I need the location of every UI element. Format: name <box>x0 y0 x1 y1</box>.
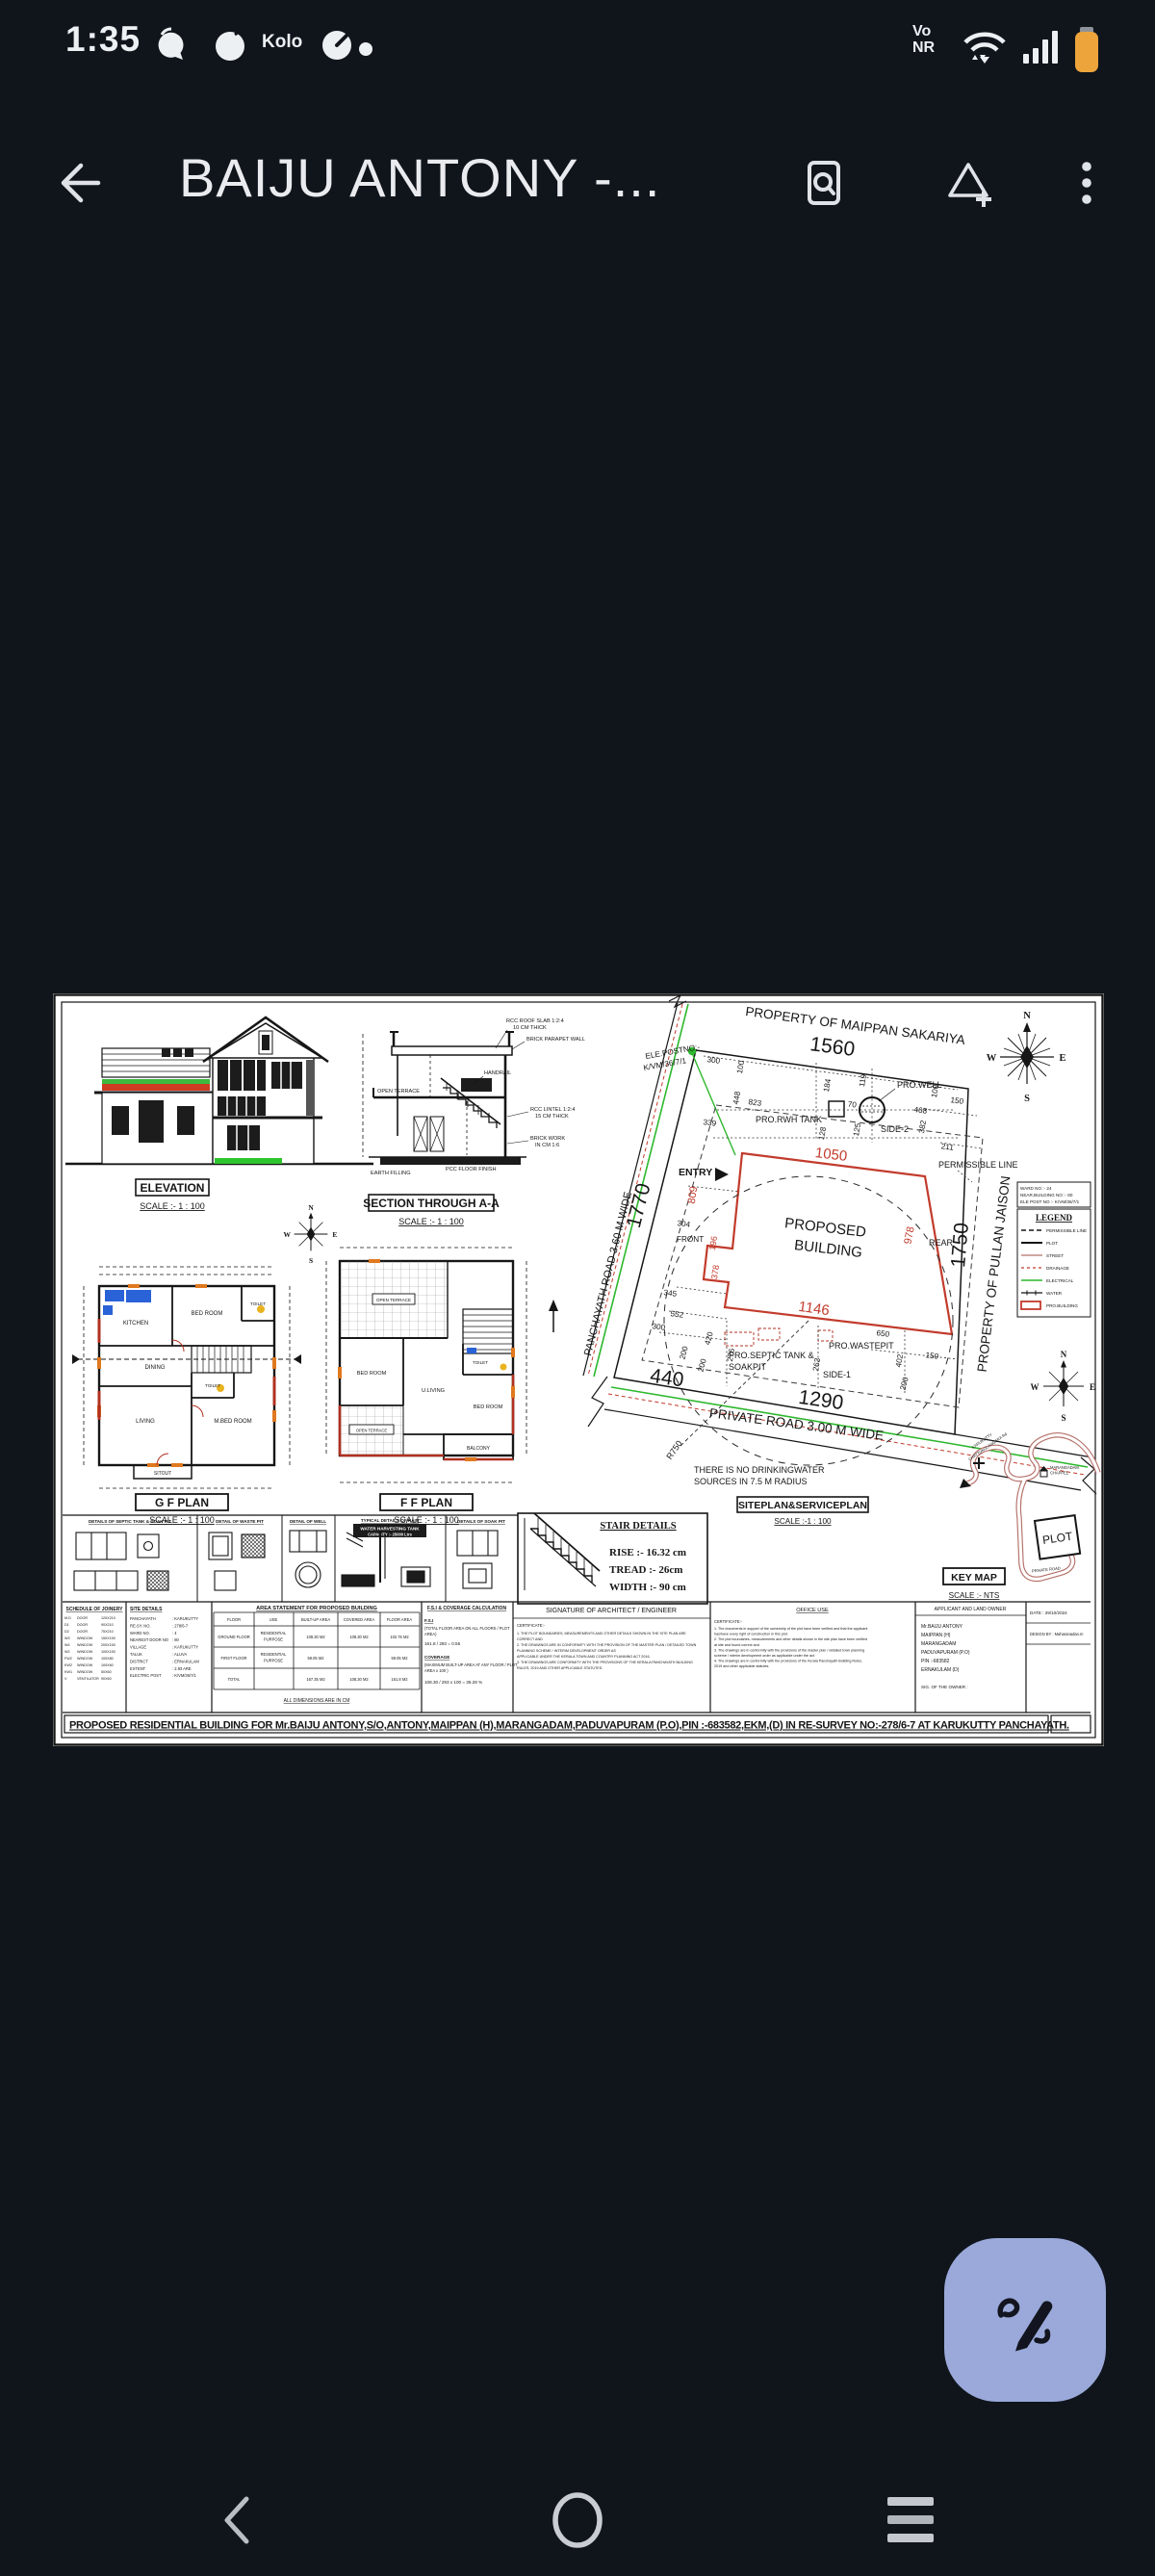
stair-title: STAIR DETAILS <box>600 1521 676 1532</box>
site-detail-val: : 2.93 ARE <box>172 1666 192 1671</box>
applicant-title: APPLICANT AND LAND OWNER <box>935 1607 1007 1612</box>
septic-label1: PRO.SEPTIC TANK & <box>729 1351 814 1360</box>
siteplan-title: SITEPLAN&SERVICEPLAN <box>738 1500 867 1511</box>
dim-339: 339 <box>703 1118 717 1128</box>
area-cell: 167.35 M2 <box>306 1677 325 1682</box>
detail-title-rwh2: WATER HARVESTING TANK <box>360 1527 420 1532</box>
app-notification-icon <box>210 25 250 65</box>
dim-211: 211 <box>940 1142 954 1152</box>
site-detail-key: WARD NO. <box>130 1631 150 1636</box>
gf-living: LIVING <box>136 1419 155 1425</box>
compass-s: S <box>1024 1094 1030 1104</box>
signature-line: 1. THE PLOT BOUNDARIES, MEASUREMENTS AND… <box>517 1632 686 1636</box>
detail-title-soakpit: DETAILS OF SOAK PIT <box>457 1519 505 1524</box>
ff-bedroom2: BED ROOM <box>474 1404 503 1410</box>
gf-mbedroom: M.BED ROOM <box>214 1419 251 1425</box>
site-detail-key: PANCHAYATH <box>130 1616 156 1621</box>
joinery-cell: KW1 <box>64 1670 72 1674</box>
compass3-n: N <box>308 1203 314 1212</box>
legend-drainage: DRAINAGE <box>1046 1266 1069 1271</box>
caption-text: PROPOSED RESIDENTIAL BUILDING FOR Mr.BAI… <box>69 1720 1069 1732</box>
side2-label: SIDE-2 <box>881 1124 909 1134</box>
gf-toilet1: TOILET <box>250 1301 266 1306</box>
section-scale: SCALE :- 1 : 100 <box>398 1217 464 1226</box>
near-building-no: NEAR.BUILDING NO :- 80 <box>1020 1193 1073 1198</box>
signature-line: APPLICABLE UNDER THE KERALA TOWN AND COU… <box>517 1655 651 1659</box>
permissible-label: PERMISSIBLE LINE <box>938 1160 1018 1170</box>
site-detail-val: : ERNAKULAM <box>172 1659 199 1663</box>
ward-no: WARD NO :- 24 <box>1020 1186 1052 1191</box>
section-ann-brick: BRICK WORK <box>530 1136 565 1142</box>
blueprint-page[interactable]: ELEVATION SCALE :- 1 : 100 <box>53 993 1104 1746</box>
joinery-cell: 50X60 <box>101 1670 112 1674</box>
joinery-cell: 200X150 <box>101 1643 115 1647</box>
well-label: PRO.WELL <box>897 1080 942 1090</box>
signature-line: PLANNING SCHEME / INTERIM DEVELOPMENT OR… <box>517 1649 616 1653</box>
fsi-line: (TOTAL FLOOR AREA ON ALL FLOORS / PLOT <box>424 1626 510 1631</box>
site-detail-val: : K/VM/36/7/1 <box>172 1673 197 1678</box>
compass2-s: S <box>1061 1413 1065 1423</box>
gf-bedroom1: BED ROOM <box>192 1311 223 1317</box>
chappel-label1: MARANGADAM <box>1050 1465 1079 1470</box>
compass3-s: S <box>309 1256 313 1265</box>
legend-probuilding: PRO.BUILDING <box>1046 1303 1078 1308</box>
chat-notification-icon <box>154 25 194 65</box>
section-ann-brick2: IN CM 1:6 <box>535 1143 559 1148</box>
scribble-pen-icon <box>984 2279 1066 2361</box>
wifi-icon <box>961 25 1009 69</box>
site-detail-key: DISTRICT <box>130 1659 148 1663</box>
office-line: at site and found correct and <box>714 1643 759 1647</box>
speedtest-notification-icon <box>320 25 381 65</box>
area-cell: 108.30 M2 <box>306 1635 325 1639</box>
signature-title: SIGNATURE OF ARCHITECT / ENGINEER <box>546 1608 677 1614</box>
joinery-cell: D2 <box>64 1630 69 1634</box>
detail-title-septic: DETAILS OF SEPTIC TANK & SOAK PIT <box>89 1519 171 1524</box>
side1-label: SIDE-1 <box>823 1370 851 1379</box>
joinery-cell: WINDOW <box>77 1670 93 1674</box>
nav-home-button[interactable] <box>549 2491 606 2549</box>
joinery-cell: M.D <box>64 1616 71 1620</box>
area-header: BUILT-UP AREA <box>301 1617 330 1622</box>
gf-plan-title: G F PLAN <box>155 1496 209 1509</box>
applicant-line: PADUVAPURAM (P.O) <box>921 1650 970 1656</box>
site-detail-val: : KARUKUTTY <box>172 1616 198 1621</box>
detail-title-wastepit: DETAIL OF WASTE PIT <box>216 1519 264 1524</box>
compass-w: W <box>987 1053 997 1064</box>
kolo-notification-label: Kolo <box>262 32 302 53</box>
area-cell: 59.05 M2 <box>307 1656 324 1661</box>
nav-recents-button[interactable] <box>885 2495 936 2545</box>
fsi-line: AREA x 100 ) <box>424 1668 449 1673</box>
site-detail-key: VILLAGE <box>130 1645 146 1650</box>
area-cell: FIRST FLOOR <box>221 1656 247 1661</box>
gf-toilet2: TOILET <box>205 1383 220 1388</box>
entry-label: ENTRY <box>679 1167 712 1178</box>
area-cell: RESIDENTIAL <box>261 1631 288 1636</box>
site-detail-val: : 4 <box>172 1631 177 1636</box>
annotate-fab[interactable] <box>944 2238 1106 2402</box>
detail-title-rwh3: CAPACITY :- 25000 Ltrs <box>368 1533 413 1537</box>
signal-strength-icon <box>1022 25 1061 67</box>
joinery-cell: D1 <box>64 1623 69 1627</box>
signature-line: 2. THE DRAWINGS ARE IN CONFORMITY WITH T… <box>517 1643 697 1647</box>
find-in-page-icon[interactable] <box>801 160 847 206</box>
section-ann-parapet: BRICK PARAPET WALL <box>526 1037 585 1043</box>
site-detail-key: RE-SY. NO. <box>130 1623 151 1628</box>
site-detail-key: TALUK <box>130 1652 142 1657</box>
section-ann-roof2: 10 CM THICK <box>513 1025 547 1031</box>
applicant-line: MARANGADAM <box>921 1641 956 1647</box>
no-water-label1: THERE IS NO DRINKINGWATER <box>694 1465 825 1475</box>
applicant-sig: SIG. OF THE OWNER : <box>921 1685 968 1689</box>
site-detail-key: ELECTRIC POST <box>130 1673 162 1678</box>
clock: 1:35 <box>65 19 141 60</box>
ff-plan-title: F F PLAN <box>400 1496 452 1509</box>
ff-balcony: BALCONY <box>467 1446 491 1452</box>
septic-label2: SOAKPIT <box>729 1362 767 1372</box>
joinery-cell: 90X210 <box>101 1623 114 1627</box>
dim-150a: 150 <box>950 1095 964 1106</box>
joinery-cell: WINDOW <box>77 1636 93 1640</box>
site-detail-key: NEAREST DOOR NO <box>130 1637 168 1642</box>
ff-upper-living: U.LIVING <box>422 1388 445 1394</box>
vonr-indicator: VoNR <box>912 23 935 56</box>
joinery-cell: WINDOW <box>77 1657 93 1661</box>
document-title: BAIJU ANTONY -... <box>179 146 660 209</box>
site-detail-val: : ALUVA <box>172 1652 187 1657</box>
area-cell: 59.05 M2 <box>391 1656 408 1661</box>
ff-terrace1: OPEN TERRACE <box>376 1298 411 1302</box>
area-header: USE <box>269 1617 278 1622</box>
chappel-label2: CHAPPEL <box>1050 1471 1069 1476</box>
compass3-w: W <box>283 1230 291 1239</box>
stair-width: WIDTH :- 90 cm <box>609 1582 686 1593</box>
applicant-line: Mr.BAIJU ANTONY <box>921 1624 963 1630</box>
dim-150b: 150 <box>925 1351 939 1361</box>
area-cell: 102.75 M2 <box>390 1635 409 1639</box>
gf-sitout: SITOUT <box>154 1471 171 1477</box>
drive-add-icon[interactable] <box>943 160 993 208</box>
site-detail-val: : KARUKUTTY <box>172 1645 198 1650</box>
joinery-cell: 100X60 <box>101 1663 114 1667</box>
stair-rise: RISE :- 16.32 cm <box>609 1547 686 1558</box>
compass-e: E <box>1059 1053 1065 1064</box>
dim-823: 823 <box>748 1097 762 1108</box>
area-cell: TOTAL <box>228 1677 242 1682</box>
dim-304: 304 <box>677 1219 691 1229</box>
office-line: 2019 and other applicable statutes. <box>714 1664 769 1668</box>
rear-label: REAR <box>929 1238 954 1248</box>
applicant-line: ERNAKULAM (D) <box>921 1667 960 1673</box>
detail-title-rwh1: TYPICAL DETAILS OF RAIN <box>361 1518 420 1523</box>
no-water-label2: SOURCES IN 7.5 M RADIUS <box>694 1477 808 1486</box>
area-cell: GROUND FLOOR <box>218 1635 249 1639</box>
blueprint-drawing: ELEVATION SCALE :- 1 : 100 <box>53 993 1104 1746</box>
joinery-cell: WINDOW <box>77 1650 93 1654</box>
area-header: FLOOR AREA <box>387 1617 412 1622</box>
joinery-cell: W4 <box>64 1643 70 1647</box>
back-arrow-icon[interactable] <box>54 158 104 208</box>
section-title: SECTION THROUGH A-A <box>363 1197 500 1210</box>
dim-300a: 300 <box>706 1055 721 1066</box>
rwh-label: PRO.RWH TANK <box>756 1115 822 1124</box>
office-line: has/have every right of construction in … <box>714 1633 788 1636</box>
area-cell: PURPOSE <box>264 1637 283 1642</box>
ff-bedroom1: BED ROOM <box>357 1371 387 1377</box>
rwh-tank <box>829 1101 844 1117</box>
signature-line: RULES, 2019 AND OTHER APPLICABLE STATUTE… <box>517 1666 603 1670</box>
design-by: DESIGN BY : Maharanadan.m <box>1030 1632 1084 1636</box>
dim-300b: 300 <box>652 1322 666 1332</box>
compass2-e: E <box>1090 1382 1095 1392</box>
legend-title: LEGEND <box>1036 1213 1073 1223</box>
area-header: FLOOR <box>227 1617 241 1622</box>
dim-650: 650 <box>876 1328 890 1339</box>
date-value: DATE : 29/10/2024 <box>1030 1610 1067 1615</box>
section-ann-pcc: PCC FLOOR FINISH <box>446 1167 497 1172</box>
office-line: scheme / interim development order as ap… <box>714 1654 815 1658</box>
joinery-cell: W3 <box>64 1636 70 1640</box>
office-line: 2. The plot boundaries, measurements and… <box>714 1637 867 1641</box>
office-title: OFFICE USE <box>796 1608 829 1613</box>
stair-details-box: STAIR DETAILS RISE :- 16.32 cm TREAD :- … <box>518 1513 707 1604</box>
site-details-title: SITE DETAILS <box>130 1607 163 1612</box>
joinery-cell: WINDOW <box>77 1643 93 1647</box>
site-detail-key: EXTENT <box>130 1666 146 1671</box>
legend-permissible: PERMISSIBLE LINE <box>1046 1228 1087 1233</box>
ff-terrace2: OPEN TERRACE <box>356 1429 387 1433</box>
gf-dining: DINING <box>145 1365 166 1371</box>
joinery-cell: 100X150 <box>101 1650 115 1654</box>
gf-kitchen: KITCHEN <box>123 1321 148 1327</box>
area-cell: RESIDENTIAL <box>261 1652 288 1657</box>
applicant-line: PIN :-683582 <box>921 1659 950 1664</box>
elevation-scale: SCALE :- 1 : 100 <box>140 1201 205 1211</box>
overflow-menu-icon[interactable] <box>1080 160 1093 208</box>
section-ann-roof: RCC ROOF SLAB 1:2:4 <box>506 1018 564 1024</box>
joinery-cell: DOOR <box>77 1630 88 1634</box>
section-ann-handrail: HANDRAIL <box>484 1070 511 1076</box>
nav-back-button[interactable] <box>219 2495 258 2545</box>
office-cert: CERTIFICATE:- <box>714 1619 743 1624</box>
fsi-line: 161.8 / 293 = 0.55 <box>424 1641 461 1646</box>
area-header: COVERED AREA <box>344 1617 375 1622</box>
site-detail-val: : 278/6-7 <box>172 1623 189 1628</box>
keymap-scale: SCALE :- NTS <box>949 1591 1000 1600</box>
fsi-title: F.S.I & COVERAGE CALCULATION <box>427 1606 507 1611</box>
signature-line: CORRECT AND <box>517 1637 543 1641</box>
compass-n: N <box>1023 1011 1031 1021</box>
compass3-e: E <box>332 1230 337 1239</box>
siteplan-scale: SCALE :-1 : 100 <box>774 1517 832 1526</box>
legend-electrical: ELECTRICAL <box>1046 1278 1074 1283</box>
ff-toilet: TOILET <box>473 1360 488 1365</box>
compass2-n: N <box>1061 1350 1067 1359</box>
stair-tread: TREAD :- 26cm <box>609 1564 682 1576</box>
dim-345: 345 <box>663 1288 678 1299</box>
joinery-cell: 75X210 <box>101 1630 114 1634</box>
section-ann-terrace: OPEN TERRACE <box>377 1089 420 1095</box>
area-title: AREA STATEMENT FOR PROPOSED BUILDING <box>256 1606 377 1611</box>
section-ann-lintel2: 15 CM THICK <box>535 1114 569 1120</box>
site-detail-val: : 80 <box>172 1637 180 1642</box>
elevation-title: ELEVATION <box>141 1181 205 1195</box>
area-cell: 108.30 M2 <box>349 1677 369 1682</box>
joinery-cell: FW2 <box>64 1657 72 1661</box>
office-line: 1. The documents in support of the owner… <box>714 1627 867 1631</box>
area-cell: PURPOSE <box>264 1659 283 1663</box>
fsi-line: 108.30 / 293 x 100 = 36.28 % <box>424 1680 482 1685</box>
area-cell: 108.30 M2 <box>349 1635 369 1639</box>
joinery-cell: 100X80 <box>101 1657 114 1661</box>
section-ann-earth: EARTH FILLING <box>371 1171 411 1176</box>
signature-line: 3. THE DRAWINGS ARE CONFORMITY WITH THE … <box>517 1661 693 1664</box>
front-label: FRONT <box>677 1235 704 1244</box>
fsi-line: (MAXIMUM BUILT-UP AREA AT ANY FLOOR / PL… <box>424 1662 518 1667</box>
fsi-line: AREA) <box>424 1632 437 1636</box>
applicant-line: MAIPPAN (H) <box>921 1633 951 1638</box>
dim-440: 440 <box>649 1365 685 1392</box>
joinery-cell: W2 <box>64 1650 70 1654</box>
joinery-cell: KW2 <box>64 1663 72 1667</box>
legend-water: WATER <box>1046 1291 1063 1296</box>
section-ann-lintel: RCC LINTEL 1:2:4 <box>530 1107 575 1113</box>
office-line: 3. The drawings are in conformity with t… <box>714 1648 864 1652</box>
joinery-cell: 90X60 <box>101 1677 112 1681</box>
legend-plot: PLOT <box>1046 1241 1058 1246</box>
legend-street: STREET <box>1046 1253 1064 1258</box>
joinery-cell: VENTILATOR <box>77 1677 99 1681</box>
keymap-title: KEY MAP <box>951 1572 997 1584</box>
area-footer: ALL DIMENSIONS ARE IN CM <box>284 1698 350 1704</box>
area-cell: 161.8 M2 <box>391 1677 408 1682</box>
signature-cert: CERTIFICATE:- <box>517 1623 546 1628</box>
dim-70: 70 <box>847 1099 858 1109</box>
fsi-line: COVERAGE <box>424 1655 449 1660</box>
office-line: 4. The drawings are in conformity with t… <box>714 1660 862 1663</box>
dim-468: 468 <box>913 1105 928 1116</box>
joinery-title: SCHEDULE OF JOINERY <box>66 1607 124 1612</box>
android-screen: 1:35 Kolo VoNR <box>0 0 1155 2576</box>
joinery-cell: DOOR <box>77 1616 88 1620</box>
battery-icon <box>1072 25 1101 75</box>
detail-title-well: DETAIL OF WELL <box>290 1519 326 1524</box>
ele-post-no: ELE POST NO :- K/VM/36/7/1 <box>1020 1199 1080 1204</box>
joinery-cell: DOOR <box>77 1623 88 1627</box>
proposed-well <box>860 1097 885 1122</box>
joinery-cell: WINDOW <box>77 1663 93 1667</box>
joinery-cell: 120X210 <box>101 1616 115 1620</box>
wastepit-label: PRO.WASTEPIT <box>829 1341 894 1351</box>
fsi-line: F.S.I <box>424 1618 433 1623</box>
compass2-w: W <box>1031 1382 1039 1392</box>
joinery-cell: 150X150 <box>101 1636 115 1640</box>
dim-552: 552 <box>670 1309 684 1320</box>
